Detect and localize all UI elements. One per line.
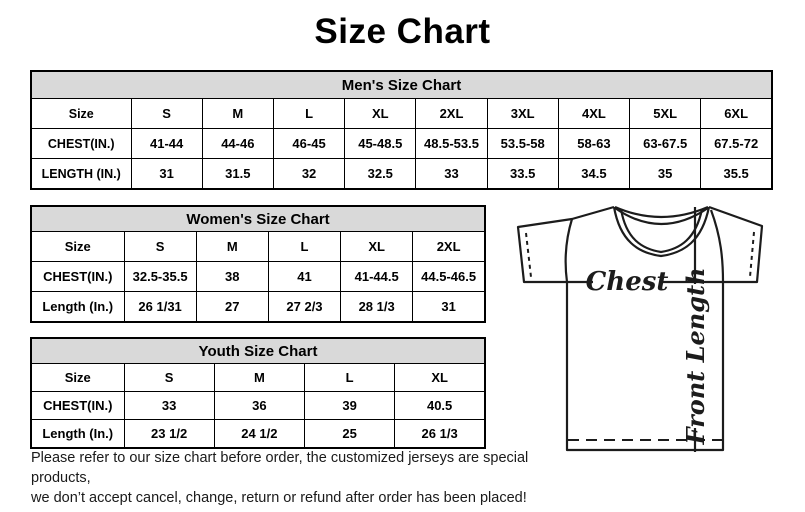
size-cell: L (273, 99, 344, 129)
page-title: Size Chart (0, 12, 805, 52)
length-cell: 32 (273, 159, 344, 190)
length-cell: 27 2/3 (268, 292, 340, 323)
mens-table-header: Men's Size Chart (31, 71, 772, 99)
mens-length-row: LENGTH (IN.) 31 31.5 32 32.5 33 33.5 34.… (31, 159, 772, 190)
chest-cell: 41-44.5 (341, 262, 413, 292)
row-label-chest: CHEST(IN.) (31, 392, 124, 420)
size-cell: 5XL (630, 99, 701, 129)
length-cell: 33 (416, 159, 487, 190)
chest-cell: 41-44 (131, 129, 202, 159)
size-cell: 2XL (416, 99, 487, 129)
length-cell: 31.5 (202, 159, 273, 190)
chest-cell: 45-48.5 (345, 129, 416, 159)
chest-cell: 38 (196, 262, 268, 292)
length-cell: 26 1/31 (124, 292, 196, 323)
mens-size-table: Men's Size Chart Size S M L XL 2XL 3XL 4… (30, 70, 773, 190)
row-label-chest: CHEST(IN.) (31, 262, 124, 292)
size-cell: L (305, 364, 395, 392)
youth-length-row: Length (In.) 23 1/2 24 1/2 25 26 1/3 (31, 420, 485, 449)
mens-chest-row: CHEST(IN.) 41-44 44-46 46-45 45-48.5 48.… (31, 129, 772, 159)
row-label-length: Length (In.) (31, 292, 124, 323)
row-label-chest: CHEST(IN.) (31, 129, 131, 159)
length-cell: 26 1/3 (395, 420, 485, 449)
chest-cell: 32.5-35.5 (124, 262, 196, 292)
youth-table-title: Youth Size Chart (31, 338, 485, 364)
size-cell: S (131, 99, 202, 129)
size-cell: M (196, 232, 268, 262)
length-cell: 27 (196, 292, 268, 323)
mens-table-title: Men's Size Chart (31, 71, 772, 99)
front-length-label: Front Length (681, 267, 710, 445)
length-cell: 25 (305, 420, 395, 449)
chest-cell: 36 (214, 392, 304, 420)
chest-cell: 41 (268, 262, 340, 292)
chest-cell: 44-46 (202, 129, 273, 159)
length-cell: 31 (131, 159, 202, 190)
chest-cell: 33 (124, 392, 214, 420)
svg-text:Front Length: Front Length (681, 267, 710, 445)
size-cell: S (124, 364, 214, 392)
womens-length-row: Length (In.) 26 1/31 27 27 2/3 28 1/3 31 (31, 292, 485, 323)
size-cell: S (124, 232, 196, 262)
chest-label: Chest (586, 267, 669, 297)
womens-size-row: Size S M L XL 2XL (31, 232, 485, 262)
chest-cell: 40.5 (395, 392, 485, 420)
size-cell: XL (395, 364, 485, 392)
row-label-size: Size (31, 99, 131, 129)
womens-table-title: Women's Size Chart (31, 206, 485, 232)
chest-cell: 46-45 (273, 129, 344, 159)
size-cell: M (202, 99, 273, 129)
chest-cell: 44.5-46.5 (413, 262, 485, 292)
size-cell: 6XL (701, 99, 772, 129)
womens-size-table: Women's Size Chart Size S M L XL 2XL CHE… (30, 205, 486, 323)
chest-cell: 53.5-58 (487, 129, 558, 159)
length-cell: 33.5 (487, 159, 558, 190)
size-cell: 3XL (487, 99, 558, 129)
youth-chest-row: CHEST(IN.) 33 36 39 40.5 (31, 392, 485, 420)
size-cell: M (214, 364, 304, 392)
size-cell: XL (345, 99, 416, 129)
youth-size-row: Size S M L XL (31, 364, 485, 392)
jersey-diagram: Chest Front Length (510, 193, 802, 459)
chest-cell: 39 (305, 392, 395, 420)
womens-chest-row: CHEST(IN.) 32.5-35.5 38 41 41-44.5 44.5-… (31, 262, 485, 292)
mens-size-row: Size S M L XL 2XL 3XL 4XL 5XL 6XL (31, 99, 772, 129)
footer-line-2: we don’t accept cancel, change, return o… (31, 488, 566, 508)
length-cell: 35.5 (701, 159, 772, 190)
chest-cell: 58-63 (558, 129, 629, 159)
length-cell: 34.5 (558, 159, 629, 190)
length-cell: 31 (413, 292, 485, 323)
footer-line-1: Please refer to our size chart before or… (31, 448, 566, 488)
length-cell: 32.5 (345, 159, 416, 190)
youth-size-table: Youth Size Chart Size S M L XL CHEST(IN.… (30, 337, 486, 449)
size-cell: XL (341, 232, 413, 262)
chest-cell: 48.5-53.5 (416, 129, 487, 159)
row-label-size: Size (31, 364, 124, 392)
length-cell: 23 1/2 (124, 420, 214, 449)
length-cell: 24 1/2 (214, 420, 304, 449)
youth-table-header: Youth Size Chart (31, 338, 485, 364)
footer-note: Please refer to our size chart before or… (31, 448, 566, 508)
row-label-length: Length (In.) (31, 420, 124, 449)
womens-table-header: Women's Size Chart (31, 206, 485, 232)
length-cell: 35 (630, 159, 701, 190)
row-label-length: LENGTH (IN.) (31, 159, 131, 190)
size-cell: 4XL (558, 99, 629, 129)
jersey-right-sleeve (709, 207, 762, 282)
svg-text:Chest: Chest (586, 267, 669, 297)
chest-cell: 67.5-72 (701, 129, 772, 159)
size-cell: 2XL (413, 232, 485, 262)
size-cell: L (268, 232, 340, 262)
chest-cell: 63-67.5 (630, 129, 701, 159)
length-cell: 28 1/3 (341, 292, 413, 323)
row-label-size: Size (31, 232, 124, 262)
